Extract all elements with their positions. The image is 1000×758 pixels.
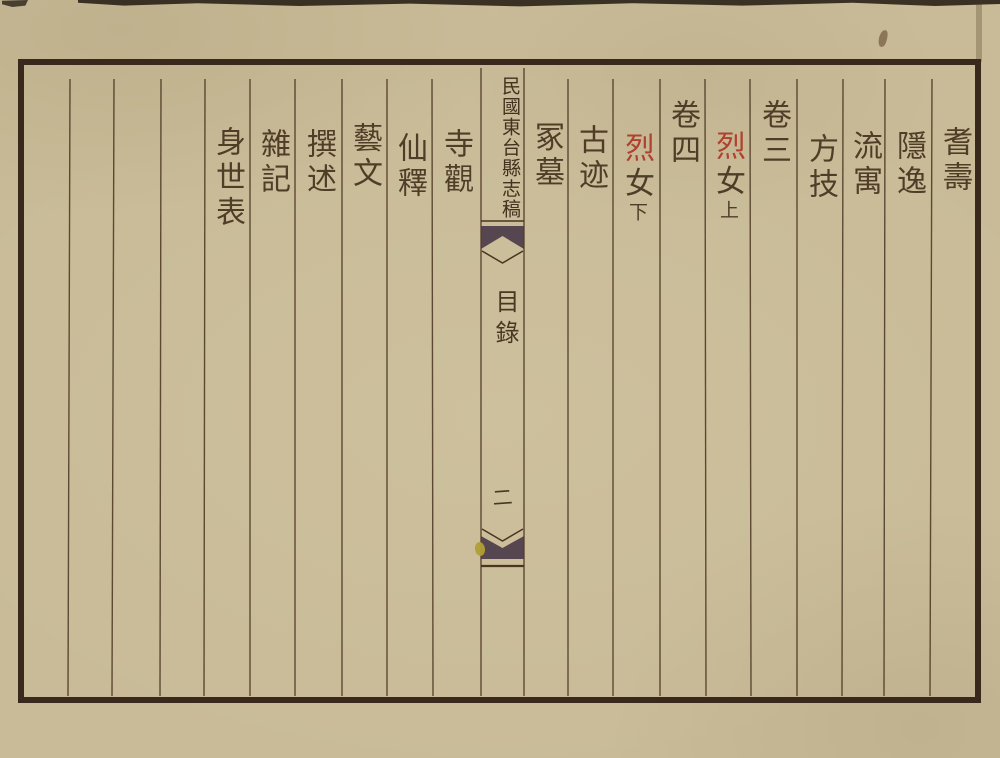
toc-entry: 雜記 bbox=[255, 128, 289, 198]
toc-entry: 方技 bbox=[803, 133, 837, 203]
toc-entry-text: 方技 bbox=[804, 133, 837, 203]
toc-entry: 流寓 bbox=[847, 130, 881, 200]
toc-entry: 身世表 bbox=[210, 126, 244, 231]
toc-entry-text: 卷三 bbox=[757, 99, 790, 169]
toc-entry-text: 女 bbox=[620, 167, 653, 202]
fishtail-chevron-bottom bbox=[482, 529, 523, 541]
toc-entry-text: 撰述 bbox=[302, 128, 335, 198]
toc-entry: 撰述 bbox=[301, 128, 335, 198]
toc-entry-text: 女 bbox=[711, 165, 744, 200]
column-rule bbox=[750, 79, 751, 696]
fishtail-mark-top bbox=[481, 226, 524, 249]
toc-entry: 耆壽 bbox=[937, 126, 971, 196]
column-rule bbox=[160, 79, 161, 696]
column-rule bbox=[432, 79, 433, 696]
toc-entry-text: 雜記 bbox=[256, 128, 289, 198]
toc-entry: 冢墓 bbox=[529, 121, 563, 191]
column-rule bbox=[842, 79, 843, 696]
toc-entry-text: 藝文 bbox=[348, 122, 381, 192]
book-title-vertical: 民國東台縣志稿 bbox=[497, 76, 521, 220]
toc-entry-text: 耆壽 bbox=[938, 126, 971, 196]
toc-entry-red-char: 烈 bbox=[620, 132, 653, 167]
column-rule bbox=[930, 79, 932, 696]
toc-entry-text: 冢墓 bbox=[530, 121, 563, 191]
column-rule bbox=[204, 79, 205, 696]
toc-entry: 烈女上 bbox=[710, 130, 744, 222]
toc-entry-text: 隱逸 bbox=[892, 130, 925, 200]
scanned-gazetteer-page: 耆壽 隱逸 流寓 方技 卷三 烈女上 卷四 烈女下 古迹 冢墓 民國東台縣志稿 … bbox=[0, 0, 1000, 758]
column-rule bbox=[68, 79, 70, 696]
column-rule bbox=[884, 79, 885, 696]
fishtail-chevron-top bbox=[482, 251, 523, 263]
toc-entry: 烈女下 bbox=[619, 132, 653, 224]
toc-entry: 卷四 bbox=[665, 99, 699, 169]
toc-entry-text: 寺觀 bbox=[439, 128, 472, 198]
toc-entry-text: 卷四 bbox=[666, 99, 699, 169]
toc-entry: 隱逸 bbox=[891, 130, 925, 200]
toc-entry-text: 流寓 bbox=[848, 130, 881, 200]
toc-entry: 寺觀 bbox=[438, 128, 472, 198]
column-rule bbox=[705, 79, 706, 696]
toc-entry-suffix: 上 bbox=[717, 200, 738, 222]
toc-entry: 仙釋 bbox=[392, 132, 426, 202]
fishtail-mark-bottom bbox=[481, 536, 524, 559]
toc-entry: 古迹 bbox=[573, 124, 607, 194]
page-number: 二 bbox=[487, 486, 512, 508]
toc-entry-text: 身世表 bbox=[211, 126, 244, 231]
toc-entry: 藝文 bbox=[347, 122, 381, 192]
toc-entry: 卷三 bbox=[756, 99, 790, 169]
column-rule bbox=[112, 79, 114, 696]
toc-entry-suffix: 下 bbox=[626, 202, 647, 224]
toc-entry-text: 古迹 bbox=[574, 124, 607, 194]
toc-entry-red-char: 烈 bbox=[711, 130, 744, 165]
toc-entry-text: 仙釋 bbox=[393, 132, 426, 202]
section-label: 目錄 bbox=[490, 289, 518, 351]
